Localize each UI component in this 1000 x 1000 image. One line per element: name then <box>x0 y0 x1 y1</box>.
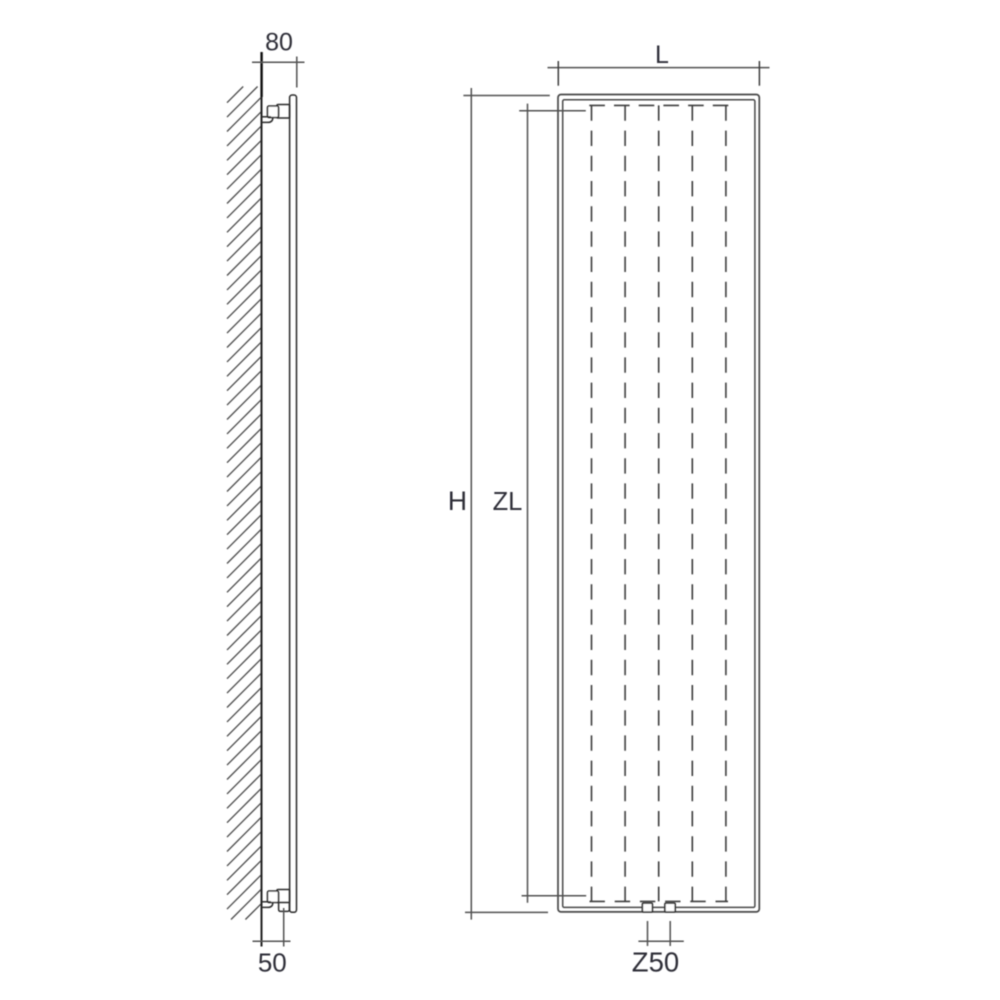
svg-text:Z50: Z50 <box>632 947 679 978</box>
svg-text:ZL: ZL <box>493 488 523 516</box>
svg-text:50: 50 <box>258 947 287 977</box>
svg-text:H: H <box>448 486 467 516</box>
svg-text:L: L <box>655 41 669 69</box>
svg-text:80: 80 <box>265 29 293 57</box>
